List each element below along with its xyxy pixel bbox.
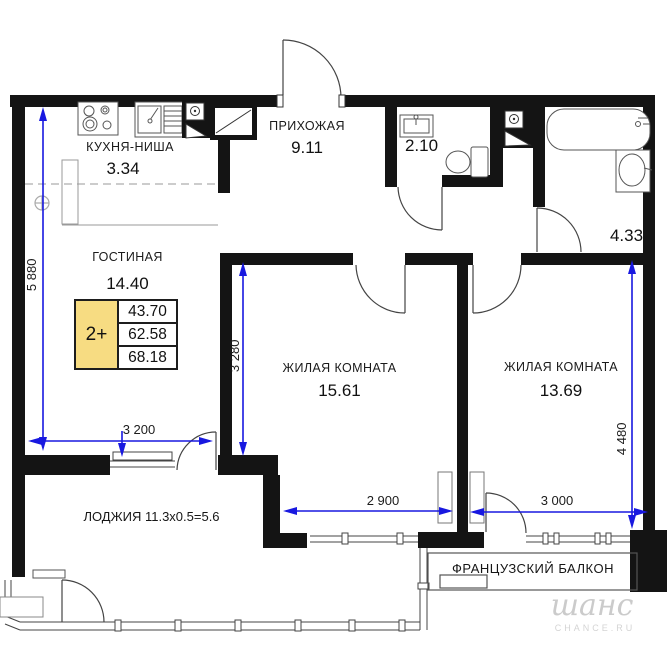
living-area: 14.40: [80, 275, 175, 293]
bedroom2-label: ЖИЛАЯ КОМНАТА: [486, 361, 636, 374]
hallway-closet-icon: [210, 103, 257, 140]
wc-vanity-sink-icon: [400, 115, 433, 137]
dim-left-height: 5 880: [25, 240, 39, 310]
bedroom1-window: [310, 533, 418, 544]
living-area-value: 43.70: [119, 301, 176, 324]
bathroom-door: [537, 208, 581, 252]
entrance-door: [277, 40, 345, 107]
dim-bedroom1-width: 2 900: [348, 494, 418, 508]
bathroom-area: 4.33: [599, 227, 654, 245]
bedroom1-balcony-door: [486, 493, 526, 533]
bedroom1-door: [356, 265, 405, 313]
apartment-type-badge: 2+: [76, 301, 119, 368]
kitchen-label: КУХНЯ-НИША: [60, 141, 200, 154]
watermark-logo: шанс: [536, 588, 648, 623]
loggia-exterior-door: [33, 570, 104, 622]
vent-symbol-icon: [35, 196, 49, 210]
living-loggia-door: [177, 432, 216, 470]
dim-bedroom1-height: 3 280: [228, 321, 242, 391]
kitchen-vent-shaft-icon: [182, 100, 210, 138]
bath-vent-shaft-icon: [500, 106, 535, 148]
area-summary-table: 2+ 43.70 62.58 68.18: [74, 299, 178, 370]
hallway-label: ПРИХОЖАЯ: [262, 120, 352, 133]
bedroom2-door: [473, 265, 521, 313]
bedroom2-window: [526, 533, 630, 544]
floor-plan: КУХНЯ-НИША 3.34 ПРИХОЖАЯ 9.11 2.10 4.33 …: [0, 0, 670, 670]
dim-living-width: 3 200: [104, 423, 174, 437]
bedroom2-area: 13.69: [486, 382, 636, 400]
stove-icon: [78, 102, 118, 135]
loggia-label: ЛОДЖИЯ 11.3x0.5=5.6: [64, 510, 239, 524]
wc-door: [398, 187, 442, 230]
total-area-value: 68.18: [119, 347, 176, 368]
kitchen-area: 3.34: [83, 160, 163, 178]
bedroom1-label: ЖИЛАЯ КОМНАТА: [262, 362, 417, 375]
living-window: [110, 452, 175, 467]
kitchen-sink-icon: [135, 102, 185, 137]
loggia-glazing: [5, 548, 429, 631]
bath-sink-icon: [616, 150, 652, 192]
exterior-ledge: [0, 597, 43, 617]
bedroom1-area: 15.61: [262, 382, 417, 400]
watermark-caption: CHANCE.RU: [545, 623, 645, 633]
wc-area: 2.10: [394, 137, 449, 155]
dim-right-height: 4 480: [615, 404, 629, 474]
french-balcony-label: ФРАНЦУЗСКИЙ БАЛКОН: [433, 562, 633, 576]
toilet-icon: [446, 147, 488, 177]
bathtub-icon: [547, 109, 650, 150]
living-label: ГОСТИНАЯ: [80, 251, 175, 264]
dim-bedroom2-width: 3 000: [522, 494, 592, 508]
area-no-balcony-value: 62.58: [119, 324, 176, 347]
hallway-area: 9.11: [262, 139, 352, 157]
